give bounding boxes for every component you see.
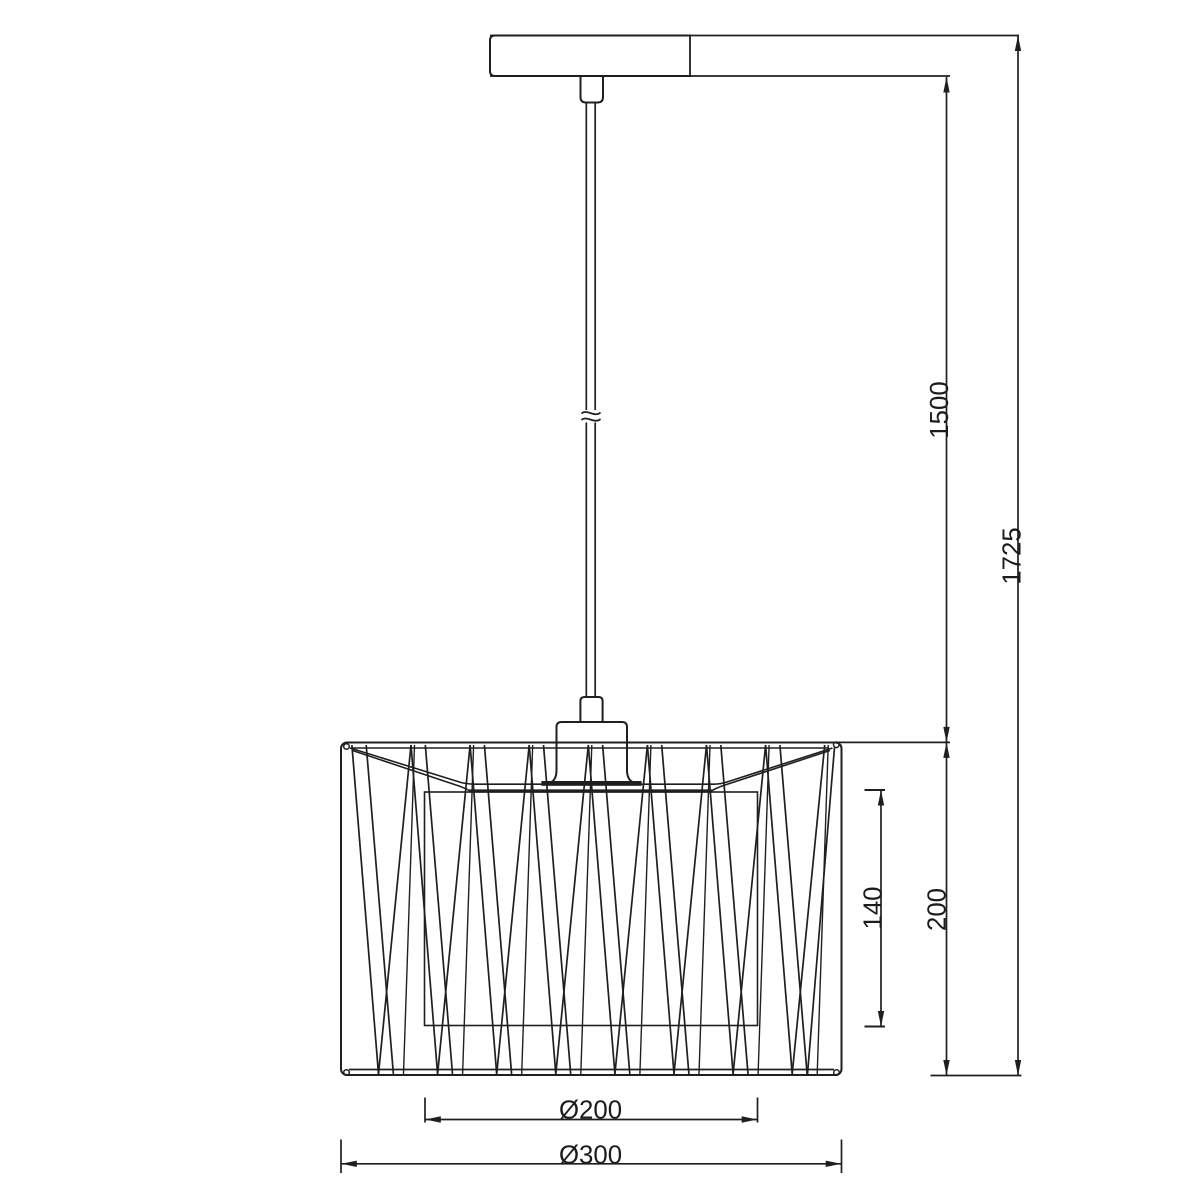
svg-text:1725: 1725 bbox=[999, 527, 1027, 584]
svg-text:Ø200: Ø200 bbox=[559, 1097, 622, 1125]
svg-text:140: 140 bbox=[860, 886, 888, 929]
svg-text:1500: 1500 bbox=[926, 381, 954, 438]
svg-text:200: 200 bbox=[924, 888, 952, 931]
svg-text:Ø300: Ø300 bbox=[559, 1142, 622, 1170]
